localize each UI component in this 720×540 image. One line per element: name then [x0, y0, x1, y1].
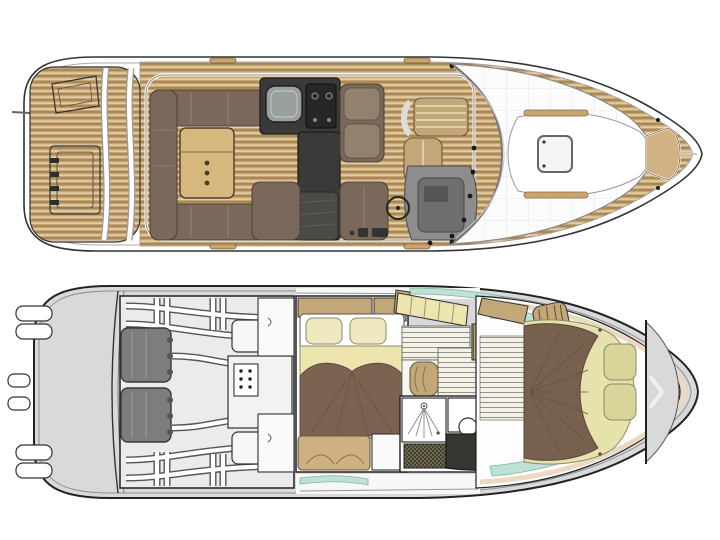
bow-pillow-port: [604, 344, 636, 380]
shower: [402, 398, 446, 442]
anchor-locker: [646, 128, 680, 180]
lower-deck-plan: [8, 286, 698, 498]
cockpit-table: [180, 128, 234, 198]
main-deck-plan: [12, 57, 702, 251]
galley-stove: [306, 84, 336, 128]
floorplan-svg: [0, 0, 720, 540]
port-engine: [121, 328, 173, 382]
mid-cabin-sofa: [298, 436, 370, 470]
swim-platform: [30, 67, 140, 242]
boat-floorplan-image: [0, 0, 720, 540]
starboard-engine: [121, 388, 173, 442]
mid-cabin-bed: [300, 314, 404, 438]
mid-cabin-bedspread: [300, 363, 404, 436]
mid-cabin-pillow-right: [350, 318, 386, 344]
bow-cabin-bed: [524, 320, 636, 464]
bow-cabin: [476, 296, 684, 488]
shower-grate: [404, 444, 446, 468]
anchor-chain-locker: [646, 320, 679, 464]
bow-pillow-starboard: [604, 384, 636, 420]
toilet: [459, 418, 477, 436]
stern-fitting: [12, 112, 30, 113]
electrical-panel: [234, 364, 258, 396]
corridor-seat: [410, 362, 438, 396]
mid-cabin-pillow-left: [306, 318, 342, 344]
grab-rail-port: [524, 110, 588, 116]
grab-rail-starboard: [524, 192, 588, 198]
copilot-seat: [404, 98, 468, 136]
